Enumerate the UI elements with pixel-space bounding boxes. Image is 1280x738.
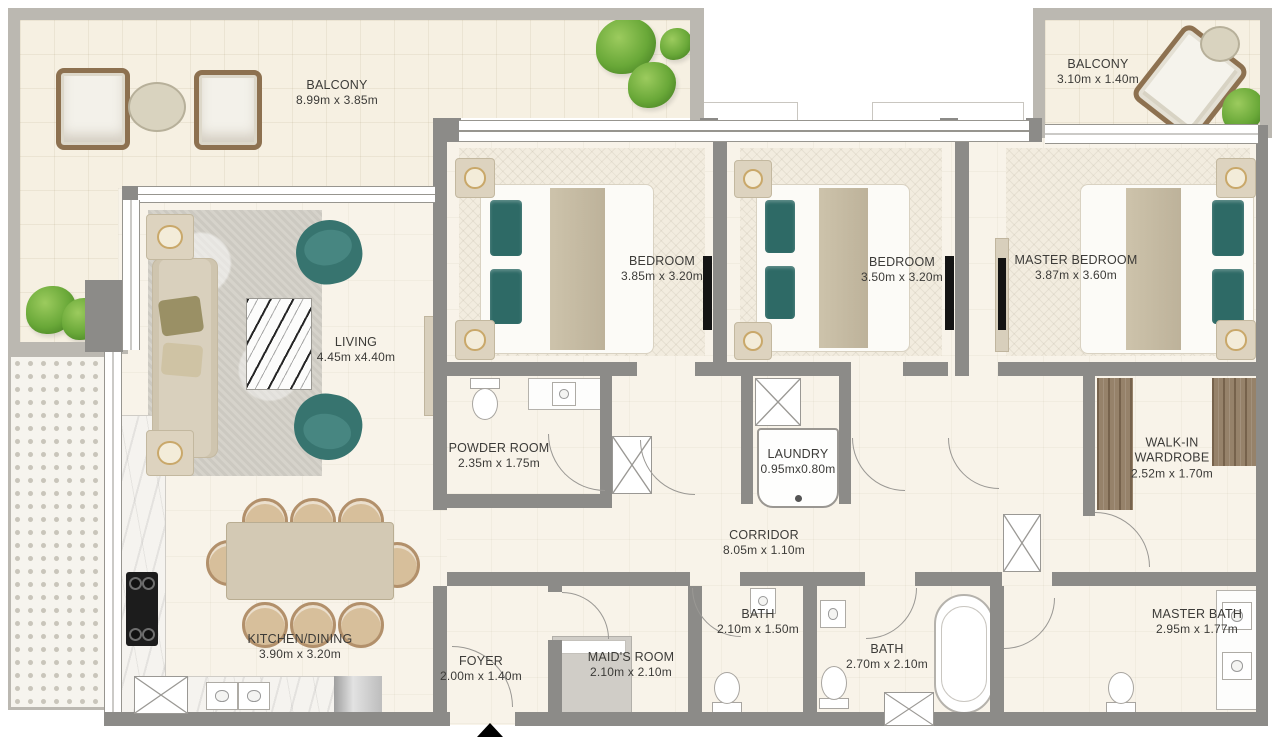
wall-corridor-south	[915, 572, 1002, 586]
bedroom-window-band	[459, 120, 1029, 142]
wall-living-bedroom1	[433, 118, 447, 510]
master-bath-sink	[1222, 652, 1252, 680]
nightstand	[455, 320, 495, 360]
wall-foyer-maid	[548, 640, 562, 712]
balcony-armchair	[56, 68, 130, 150]
cooktop	[126, 572, 158, 646]
kitchen-window-west	[104, 352, 122, 712]
wall-bedroom-south	[695, 362, 851, 376]
room-name: MASTER BEDROOM	[1015, 253, 1138, 268]
living-window-west	[122, 200, 140, 350]
room-name: WALK-IN WARDROBE	[1120, 435, 1224, 466]
nightstand	[455, 158, 495, 198]
wall-bedroom-south	[903, 362, 948, 376]
room-label-balcony-master: BALCONY 3.10m x 1.40m	[1057, 57, 1139, 87]
wall-laundry-east	[839, 376, 851, 504]
room-label-bath1: BATH 2.10m x 1.50m	[717, 607, 799, 637]
room-name: BALCONY	[1067, 57, 1128, 72]
nightstand	[1216, 320, 1256, 360]
dishwasher	[334, 676, 382, 712]
room-dims: 8.05m x 1.10m	[723, 543, 805, 558]
burner	[129, 628, 142, 641]
room-name: MASTER BATH	[1152, 607, 1242, 622]
window-mullion	[122, 186, 138, 200]
room-label-master-bedroom: MASTER BEDROOM 3.87m x 3.60m	[1015, 253, 1138, 283]
room-dims: 3.10m x 1.40m	[1057, 72, 1139, 87]
tv-bedroom2	[945, 256, 954, 330]
room-label-master-bath: MASTER BATH 2.95m x 1.77m	[1152, 607, 1242, 637]
room-name: POWDER ROOM	[449, 441, 550, 456]
wall-bottom	[104, 712, 450, 726]
wall-corridor-south	[1052, 572, 1256, 586]
wall-bath1-bath2	[803, 586, 817, 712]
bed-pillow	[1212, 200, 1245, 255]
room-dims: 3.85m x 3.20m	[621, 269, 703, 284]
room-dims: 2.95m x 1.77m	[1156, 622, 1238, 637]
living-window-band	[138, 186, 435, 203]
room-label-bath2: BATH 2.70m x 2.10m	[846, 642, 928, 672]
wall-bath2-masterbath	[990, 586, 1004, 712]
toilet-bowl	[821, 666, 847, 700]
kitchen-sink	[206, 682, 238, 710]
room-name: BEDROOM	[629, 254, 695, 269]
room-name: LIVING	[335, 335, 377, 350]
room-name: FOYER	[459, 654, 503, 669]
room-label-corridor: CORRIDOR 8.05m x 1.10m	[723, 528, 805, 558]
bed-pillow	[490, 200, 523, 255]
wall-bedroom1-bedroom2	[713, 140, 727, 376]
kitchen-sink	[238, 682, 270, 710]
balcony-round-table	[128, 82, 186, 132]
duct-shaft	[1003, 514, 1041, 572]
room-dims: 2.10m x 1.50m	[717, 622, 799, 637]
room-dims: 3.90m x 3.20m	[259, 647, 341, 662]
room-name: BALCONY	[306, 78, 367, 93]
room-label-foyer: FOYER 2.00m x 1.40m	[440, 654, 522, 684]
living-side-table	[146, 430, 194, 476]
room-dims: 3.50m x 3.20m	[861, 270, 943, 285]
burner	[142, 577, 155, 590]
wall-chunk-balcony-arm	[85, 280, 123, 352]
room-dims: 4.45m x4.40m	[317, 350, 395, 365]
room-name: MAID'S ROOM	[588, 650, 675, 665]
powder-sink	[552, 382, 576, 406]
balcony-wall-left	[8, 8, 20, 354]
nightstand	[1216, 158, 1256, 198]
room-name: BEDROOM	[869, 255, 935, 270]
wall-wardrobe-west	[1083, 376, 1095, 516]
tv-master	[998, 258, 1006, 330]
duct-shaft	[134, 676, 188, 714]
bed-pillow	[765, 200, 795, 253]
room-dims: 8.99m x 3.85m	[296, 93, 378, 108]
wall-powder-south	[447, 494, 612, 508]
room-label-laundry: LAUNDRY 0.95mx0.80m	[761, 447, 836, 477]
bathtub	[934, 594, 994, 714]
room-dims: 2.35m x 1.75m	[458, 456, 540, 471]
room-dims: 2.70m x 2.10m	[846, 657, 928, 672]
room-label-powder-room: POWDER ROOM 2.35m x 1.75m	[449, 441, 550, 471]
balcony-master-wall-top	[1033, 8, 1272, 20]
wall-laundry-west	[741, 376, 753, 504]
toilet-bowl	[472, 388, 498, 420]
wall-bedroom-south	[998, 362, 1256, 376]
wall-bedroom-south	[447, 362, 637, 376]
toilet-bowl	[1108, 672, 1134, 704]
room-dims: 2.10m x 2.10m	[590, 665, 672, 680]
room-label-maids-room: MAID'S ROOM 2.10m x 2.10m	[588, 650, 675, 680]
coffee-table-marble	[246, 298, 312, 390]
room-label-bedroom2: BEDROOM 3.50m x 3.20m	[861, 255, 943, 285]
nightstand	[734, 322, 772, 360]
room-name: KITCHEN/DINING	[248, 632, 353, 647]
room-label-balcony-main: BALCONY 8.99m x 3.85m	[296, 78, 378, 108]
sofa-pillow	[161, 342, 204, 377]
room-label-wardrobe: WALK-IN WARDROBE 2.52m x 1.70m	[1120, 435, 1224, 480]
balcony-screen-panel	[8, 354, 116, 710]
balcony-master-wall-right	[1260, 8, 1272, 138]
duct-shaft	[884, 692, 934, 726]
room-label-living: LIVING 4.45m x4.40m	[317, 335, 395, 365]
balcony-wall-right	[690, 8, 704, 120]
tv-bedroom1	[703, 256, 712, 330]
entrance-arrow	[477, 723, 503, 737]
duct-shaft	[755, 378, 801, 426]
room-name: CORRIDOR	[729, 528, 799, 543]
nightstand	[734, 160, 772, 198]
wall-kitchen-foyer	[433, 586, 447, 712]
dining-table	[226, 522, 394, 600]
bed-pillow	[1212, 269, 1245, 324]
room-label-bedroom1: BEDROOM 3.85m x 3.20m	[621, 254, 703, 284]
room-dims: 2.00m x 1.40m	[440, 669, 522, 684]
room-dims: 3.87m x 3.60m	[1035, 268, 1117, 283]
room-dims: 0.95mx0.80m	[761, 462, 836, 477]
wall-foyer-maid	[548, 586, 562, 592]
floor-plan-canvas: BALCONY 8.99m x 3.85m BALCONY 3.10m x 1.…	[0, 0, 1280, 738]
balcony-wall-top	[8, 8, 704, 20]
bed-pillow	[765, 266, 795, 319]
toilet-bowl	[714, 672, 740, 704]
room-name: BATH	[870, 642, 903, 657]
room-name: LAUNDRY	[768, 447, 829, 462]
sofa-pillow	[158, 295, 205, 336]
bed-blanket	[550, 188, 605, 349]
master-bedroom-window	[1045, 124, 1258, 144]
bed-pillow	[490, 269, 523, 324]
balcony-armchair	[194, 70, 262, 150]
room-dims: 2.52m x 1.70m	[1131, 466, 1213, 481]
living-side-table	[146, 214, 194, 260]
room-label-kitchen-dining: KITCHEN/DINING 3.90m x 3.20m	[248, 632, 353, 662]
bath2-sink	[820, 600, 846, 628]
balcony-side-table	[1200, 26, 1240, 62]
burner	[142, 628, 155, 641]
room-name: BATH	[741, 607, 774, 622]
wall-right-exterior	[1256, 125, 1268, 726]
wall-bedroom2-master	[955, 140, 969, 376]
wall-corridor-south	[740, 572, 865, 586]
wall-corridor-south	[447, 572, 690, 586]
burner	[129, 577, 142, 590]
